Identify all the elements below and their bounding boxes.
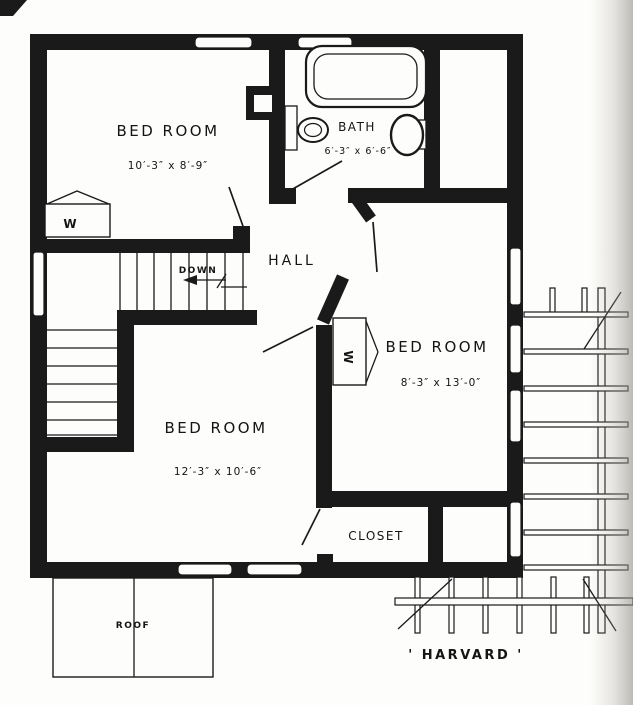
toilet [391, 115, 423, 155]
plan-name-label: ' HARVARD ' [408, 648, 524, 663]
room-dims-bedroom-e: 8′-3″ x 13′-0″ [401, 377, 481, 389]
wall-bedroom-nw-south [47, 239, 233, 253]
window [178, 564, 232, 575]
sink-backsplash [285, 106, 297, 150]
room-label-bedroom-e: BED ROOM [385, 338, 488, 356]
bedroom-nw-door-jamb [233, 226, 250, 253]
room-dims-bath: 6′-3″ x 6′-6″ [324, 146, 391, 157]
wall-closet-north [316, 491, 523, 507]
room-label-bedroom-nw: BED ROOM [116, 122, 219, 140]
window [195, 37, 252, 48]
wardrobe-label: W [341, 350, 355, 363]
window [247, 564, 302, 575]
pergola-post [582, 288, 587, 315]
page-edge-shadow [590, 0, 633, 705]
wall-below-stairs [117, 310, 257, 325]
chimney-flue [254, 95, 272, 112]
pergola-post [550, 288, 555, 315]
stairs-down-label: DOWN [179, 266, 218, 276]
room-label-closet: CLOSET [348, 529, 404, 543]
window [510, 325, 521, 373]
wall-stair-west [117, 310, 134, 452]
room-label-bath: BATH [338, 120, 376, 134]
room-label-hall: HALL [268, 253, 316, 269]
floor-plan-page: W W ROOF BED ROOM [0, 0, 633, 705]
wardrobe-box [45, 204, 110, 237]
window [510, 502, 521, 557]
window [33, 252, 44, 316]
window [510, 248, 521, 305]
wall-stair-south [30, 437, 133, 452]
sink-basin [305, 124, 322, 137]
roof-label: ROOF [116, 621, 150, 631]
wall-below-bath [348, 188, 507, 203]
closet-door-jamb [317, 554, 333, 563]
porch-roof: ROOF [53, 578, 213, 677]
floor-plan-drawing: W W ROOF BED ROOM [0, 0, 633, 705]
room-dims-bedroom-nw: 10′-3″ x 8′-9″ [128, 160, 208, 172]
wall-center [316, 325, 332, 508]
room-label-bedroom-s: BED ROOM [164, 419, 267, 437]
bathtub-inner [314, 54, 417, 99]
window [510, 390, 521, 442]
wardrobe-label: W [63, 217, 76, 231]
wall-closet-divider [428, 507, 443, 563]
room-dims-bedroom-s: 12′-3″ x 10′-6″ [174, 466, 262, 478]
